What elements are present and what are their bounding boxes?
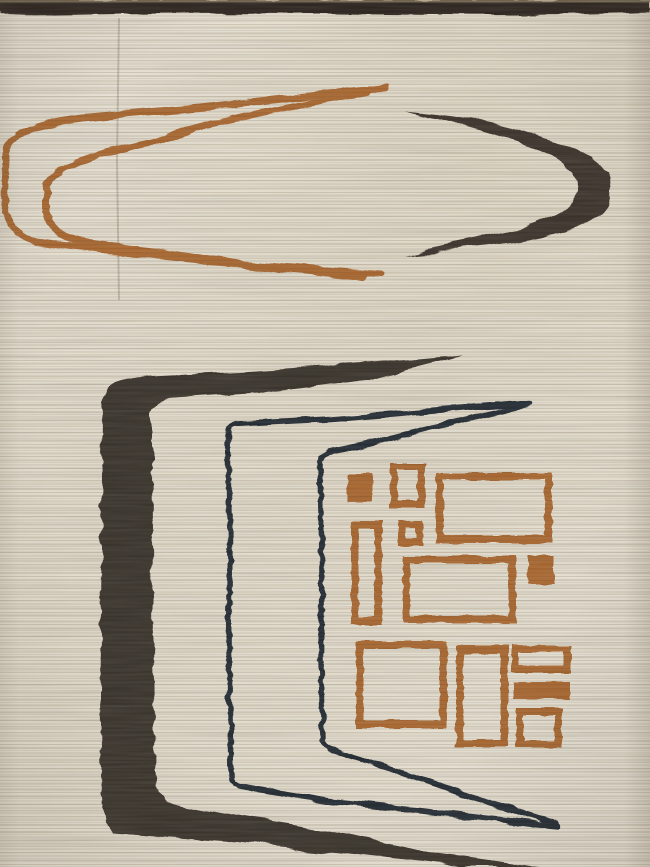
fiber-grain-light [0, 0, 650, 867]
rug-photo [0, 0, 650, 867]
rug-artwork [0, 0, 650, 867]
